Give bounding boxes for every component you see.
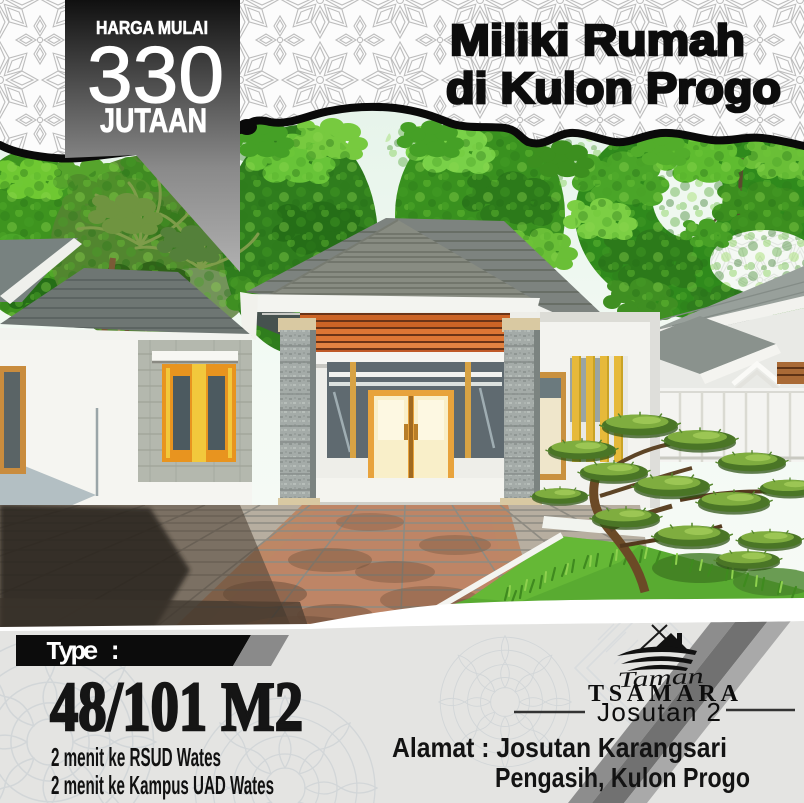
svg-text:2 menit ke RSUD Wates: 2 menit ke RSUD Wates bbox=[51, 742, 221, 772]
svg-text:Pengasih, Kulon Progo: Pengasih, Kulon Progo bbox=[495, 762, 750, 793]
svg-text:JUTAAN: JUTAAN bbox=[100, 102, 207, 140]
svg-text:48/101 M2: 48/101 M2 bbox=[50, 669, 303, 746]
svg-text:di Kulon Progo: di Kulon Progo bbox=[446, 64, 781, 113]
svg-text:2 menit ke Kampus UAD Wates: 2 menit ke Kampus UAD Wates bbox=[51, 770, 274, 800]
svg-text:Miliki Rumah: Miliki Rumah bbox=[450, 16, 745, 65]
svg-text:Alamat : Josutan Karangsari: Alamat : Josutan Karangsari bbox=[392, 732, 727, 763]
svg-text:Josutan 2: Josutan 2 bbox=[597, 697, 721, 727]
svg-text:Type :: Type : bbox=[46, 637, 123, 667]
